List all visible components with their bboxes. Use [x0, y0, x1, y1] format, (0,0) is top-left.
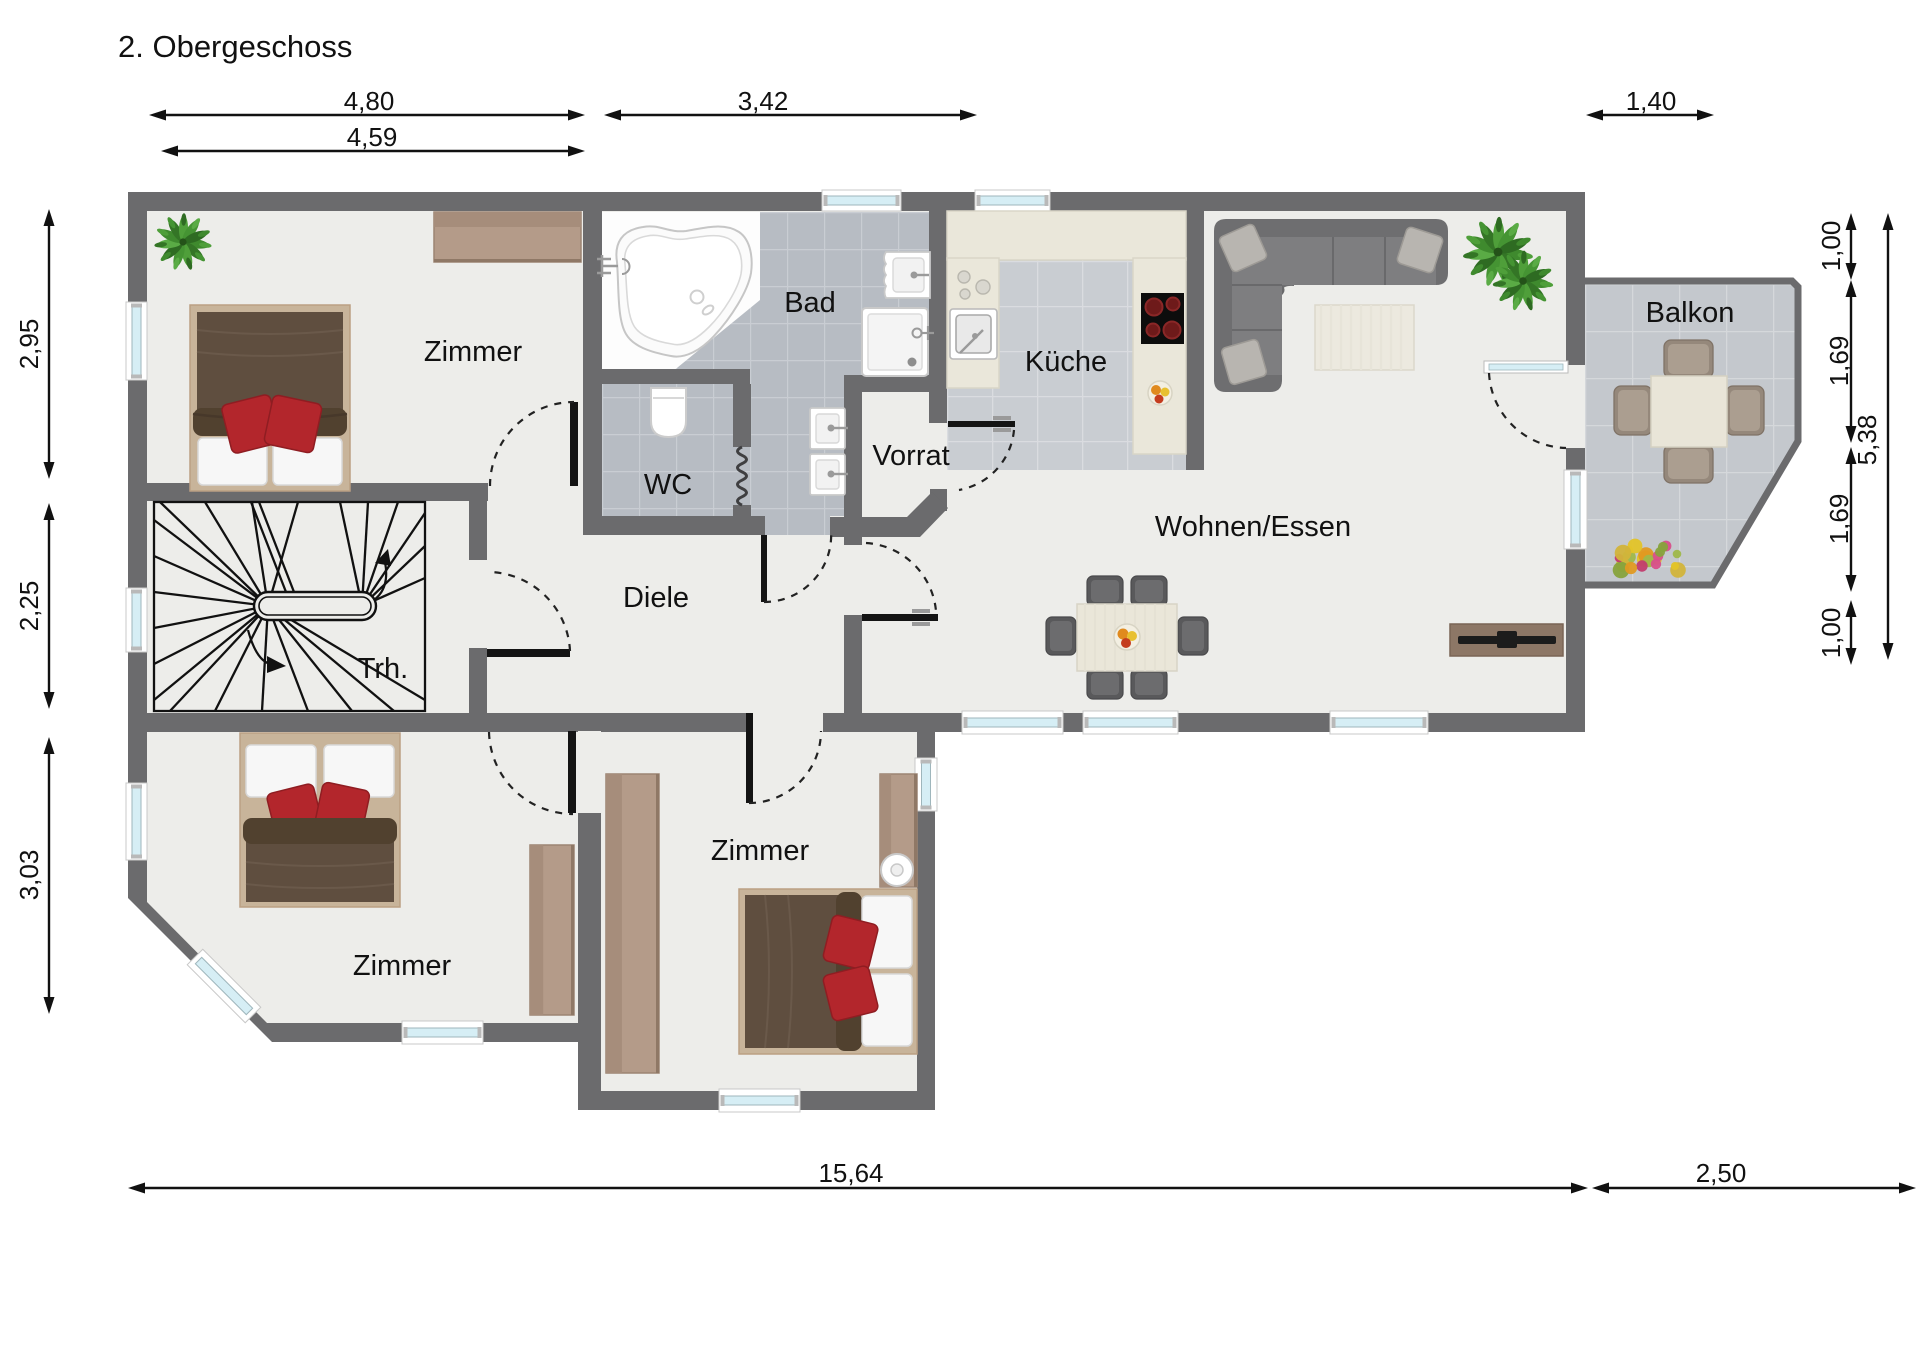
svg-text:1,00: 1,00 — [1816, 221, 1846, 272]
svg-text:15,64: 15,64 — [818, 1158, 883, 1188]
svg-text:Küche: Küche — [1025, 346, 1107, 378]
svg-text:1,00: 1,00 — [1816, 608, 1846, 659]
svg-text:2. Obergeschoss: 2. Obergeschoss — [118, 29, 352, 64]
svg-text:Bad: Bad — [784, 287, 836, 319]
svg-text:3,03: 3,03 — [14, 850, 44, 901]
svg-text:5,38: 5,38 — [1852, 415, 1882, 466]
svg-text:Diele: Diele — [623, 582, 689, 614]
svg-text:3,42: 3,42 — [738, 86, 789, 116]
svg-text:2,95: 2,95 — [14, 319, 44, 370]
svg-text:WC: WC — [644, 469, 692, 501]
svg-text:Balkon: Balkon — [1646, 297, 1735, 329]
svg-text:Wohnen/Essen: Wohnen/Essen — [1155, 511, 1351, 543]
svg-text:1,69: 1,69 — [1824, 494, 1854, 545]
svg-text:Vorrat: Vorrat — [872, 440, 949, 472]
svg-text:2,25: 2,25 — [14, 581, 44, 632]
svg-text:2,50: 2,50 — [1696, 1158, 1747, 1188]
svg-text:4,80: 4,80 — [344, 86, 395, 116]
svg-text:1,69: 1,69 — [1824, 336, 1854, 387]
svg-text:1,40: 1,40 — [1626, 86, 1677, 116]
svg-text:Trh.: Trh. — [358, 653, 408, 685]
svg-text:Zimmer: Zimmer — [711, 835, 810, 867]
svg-text:Zimmer: Zimmer — [353, 950, 452, 982]
svg-text:4,59: 4,59 — [347, 122, 398, 152]
svg-text:Zimmer: Zimmer — [424, 336, 523, 368]
